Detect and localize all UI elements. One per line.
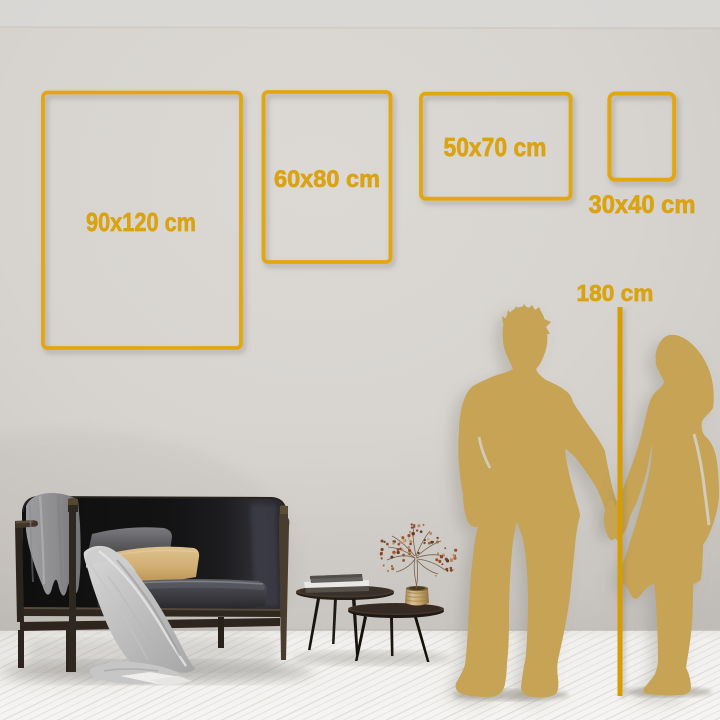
svg-text:30x40 cm: 30x40 cm <box>589 191 696 219</box>
svg-text:60x80 cm: 60x80 cm <box>274 166 380 193</box>
svg-text:50x70 cm: 50x70 cm <box>444 132 547 162</box>
svg-text:90x120 cm: 90x120 cm <box>86 207 196 237</box>
svg-text:180 cm: 180 cm <box>577 280 654 306</box>
